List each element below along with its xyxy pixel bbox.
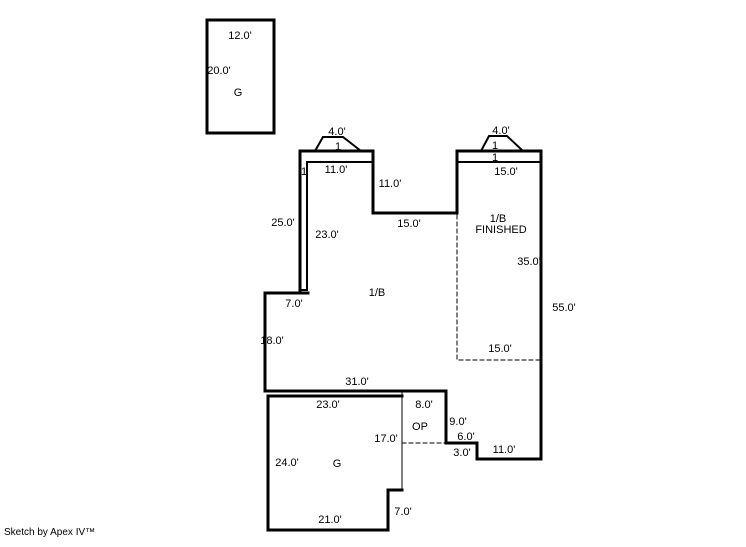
label-attached-garage: G	[333, 458, 342, 470]
dim-finished-bottom: 15.0'	[488, 343, 512, 355]
dim-detached-depth: 20.0'	[207, 65, 231, 77]
dim-finished-height: 35.0'	[517, 256, 541, 268]
apex-credit: Sketch by Apex IV™	[4, 527, 95, 538]
label-bay-right-depth: 1	[492, 140, 498, 152]
label-finished-area-line2: FINISHED	[475, 224, 526, 236]
dim-step-three: 3.0'	[453, 447, 470, 459]
dim-bay-right-width: 4.0'	[492, 125, 509, 137]
floor-plan-svg: 12.0'20.0'G4.0'14.0'1115.0'11.0'111.0'25…	[0, 0, 746, 547]
dim-bottom-main: 31.0'	[345, 376, 369, 388]
dim-garage-notch: 7.0'	[394, 506, 411, 518]
dim-right-top: 15.0'	[494, 166, 518, 178]
sketch-page: 12.0'20.0'G4.0'14.0'1115.0'11.0'111.0'25…	[0, 0, 746, 547]
label-basement-area: 1/B	[369, 287, 386, 299]
dim-garage-top: 23.0'	[316, 399, 340, 411]
dim-mid-vertical: 11.0'	[379, 178, 402, 190]
dim-right-edge: 55.0'	[552, 302, 576, 314]
dim-porch-right: 9.0'	[449, 416, 466, 428]
label-detached-garage: G	[234, 87, 243, 99]
dim-garage-right: 17.0'	[374, 433, 398, 445]
dim-detached-width: 12.0'	[228, 30, 252, 42]
dim-step-six: 6.0'	[457, 431, 474, 443]
dim-left-edge-lower: 18.0'	[260, 335, 284, 347]
dim-basement-left: 23.0'	[315, 229, 339, 241]
bay-window-right	[481, 136, 523, 151]
finished-basement-dashed	[457, 215, 541, 360]
dim-bottom-right: 11.0'	[493, 444, 516, 456]
dim-garage-left: 24.0'	[275, 457, 299, 469]
dim-garage-bottom: 21.0'	[318, 514, 342, 526]
label-open-porch: OP	[412, 421, 428, 433]
dim-left-top: 11.0'	[325, 164, 348, 176]
dim-mid-horizontal: 15.0'	[397, 218, 421, 230]
dim-left-edge-upper: 25.0'	[271, 217, 295, 229]
label-right-strip: 1	[492, 152, 498, 164]
label-bay-left-depth: 1	[335, 141, 341, 153]
dim-bay-left-width: 4.0'	[328, 126, 345, 138]
basement-offset-left	[300, 162, 371, 290]
dim-porch-top: 8.0'	[415, 399, 432, 411]
label-left-strip: 1	[301, 166, 307, 178]
dim-left-step: 7.0'	[285, 298, 302, 310]
